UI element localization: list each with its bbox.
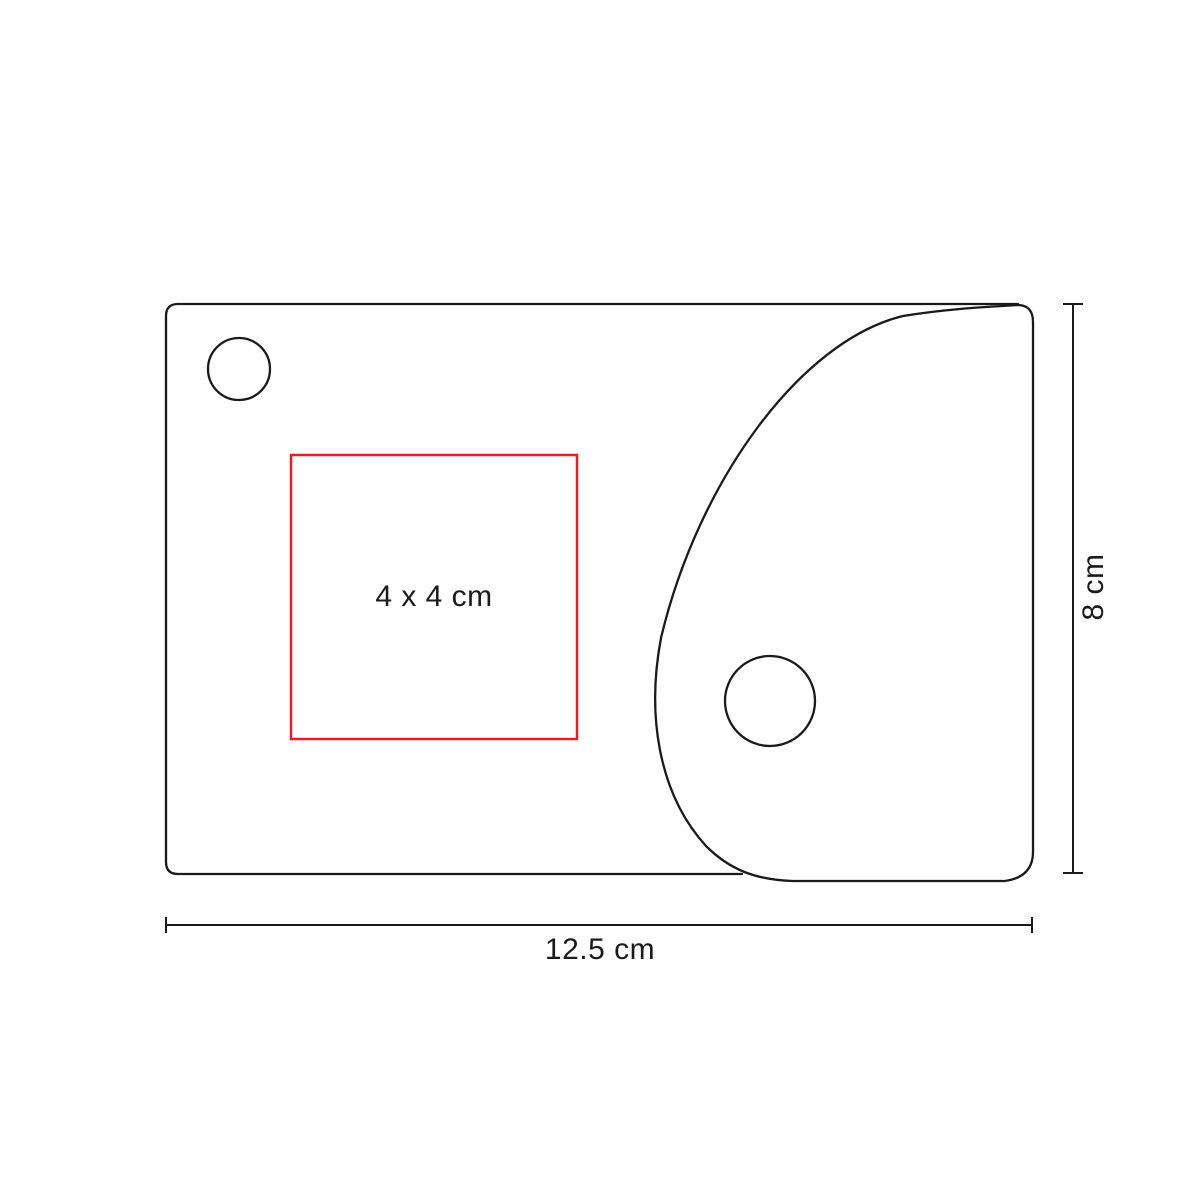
closure-flap-outline xyxy=(655,305,1033,881)
height-dimension-label: 8 cm xyxy=(1077,553,1111,620)
product-outline-drawing xyxy=(0,0,1200,1200)
width-dimension-label: 12.5 cm xyxy=(545,933,655,967)
diagram-canvas: 4 x 4 cm 12.5 cm 8 cm xyxy=(0,0,1200,1200)
width-dimension-line xyxy=(166,917,1032,933)
imprint-area-label: 4 x 4 cm xyxy=(375,580,492,614)
hang-hole-circle xyxy=(208,338,270,400)
